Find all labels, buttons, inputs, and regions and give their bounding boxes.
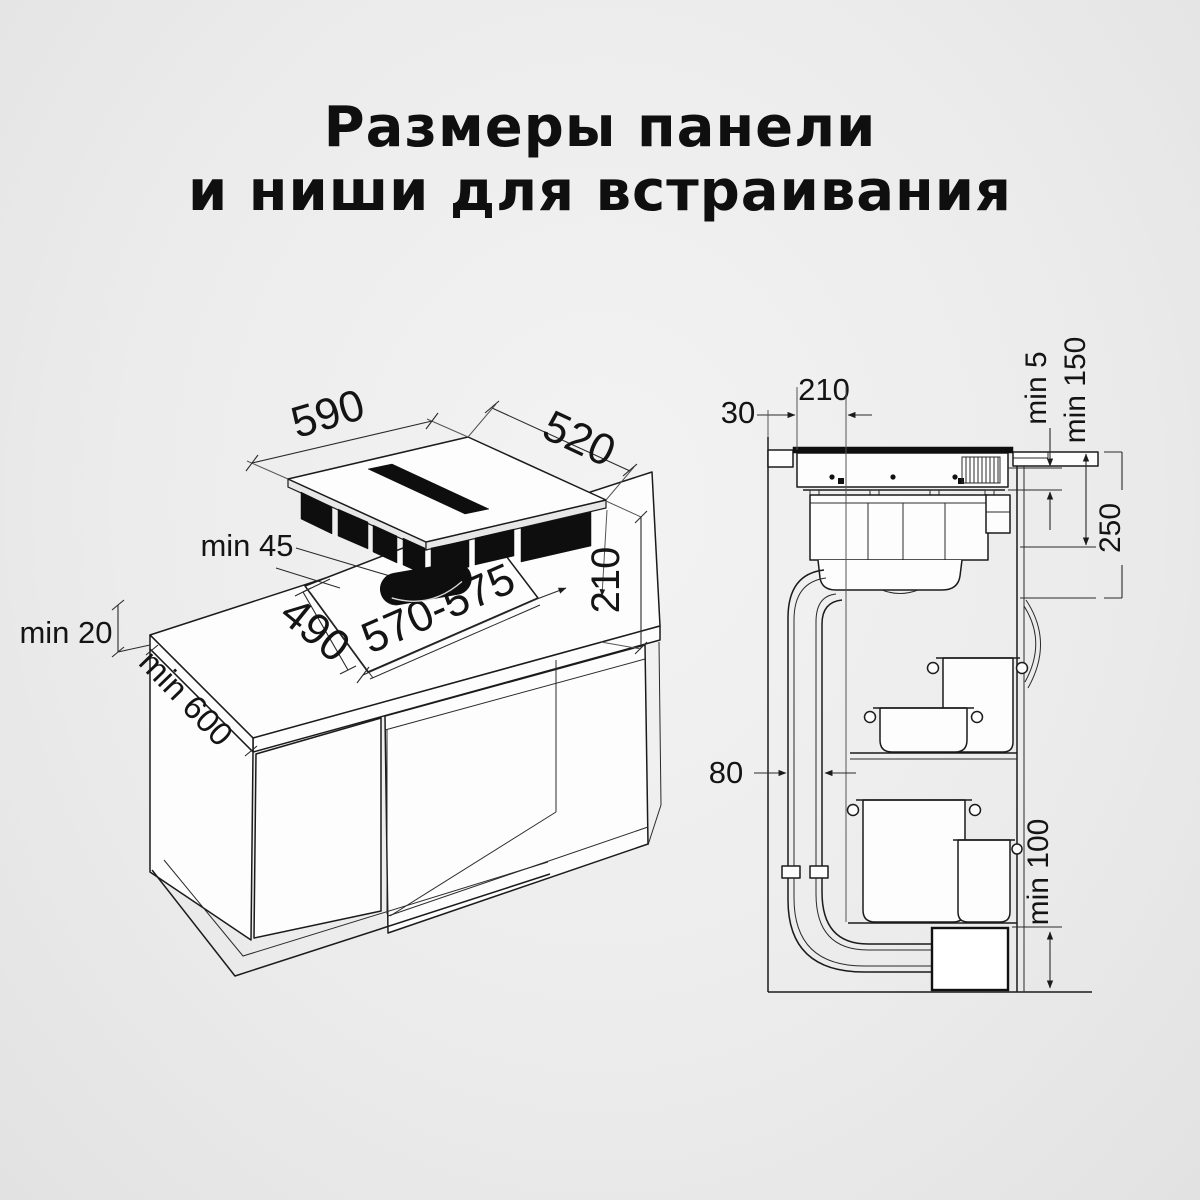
- screw-square: [838, 478, 844, 484]
- dim-duct-offset-label: 210: [798, 372, 850, 407]
- dim-250-label: 250: [1094, 503, 1127, 553]
- technical-drawing: 570-575 490 min 45 min 20 min 600: [0, 0, 1200, 1200]
- dim-panel-height-label: 210: [584, 547, 628, 614]
- ext: [468, 404, 496, 437]
- cabinet-door: [254, 718, 381, 938]
- worktop-left-strip: [768, 450, 793, 467]
- ext: [247, 461, 288, 479]
- motor-box: [986, 495, 1010, 533]
- tick: [485, 401, 499, 413]
- dim-panel-depth-label: 520: [536, 401, 623, 476]
- pan-wide-upper: [865, 708, 983, 752]
- infographic: Размеры панели и ниши для встраивания: [0, 0, 1200, 1200]
- tick: [246, 455, 258, 471]
- plinth-outlet-box: [932, 928, 1008, 990]
- drip-tray: [818, 560, 962, 590]
- tick: [623, 464, 637, 476]
- dim-min100-label: min 100: [1022, 819, 1055, 926]
- dim-min20-label: min 20: [19, 615, 112, 650]
- pot-small-lower: [953, 840, 1022, 922]
- dim-min5-label: min 5: [1020, 351, 1053, 424]
- dim-wall-clearance-label: 30: [721, 395, 755, 430]
- coil-unit: [810, 495, 988, 560]
- screw-dot: [952, 474, 957, 479]
- worktop-right: [1013, 452, 1098, 466]
- screw-dot: [890, 474, 895, 479]
- dim-min150-label: min 150: [1059, 337, 1092, 444]
- tick: [426, 413, 438, 429]
- cabinet-right-edge: [659, 642, 661, 805]
- dim-duct-width-label: 80: [709, 755, 743, 790]
- cabinet-right-edge: [648, 805, 661, 845]
- hob-glass-section: [793, 447, 1013, 453]
- hob-body-section: [797, 453, 1008, 487]
- dim-min45-label: min 45: [200, 528, 293, 563]
- ext: [427, 419, 468, 437]
- dim-panel-width-label: 590: [286, 380, 370, 448]
- screw-dot: [829, 474, 834, 479]
